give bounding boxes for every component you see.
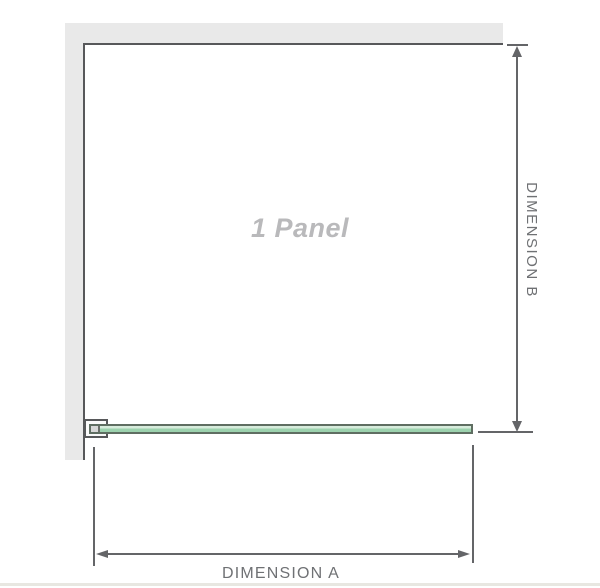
dimension-a-label: DIMENSION A <box>181 565 381 583</box>
panel-dimension-diagram: DIMENSION B DIMENSION A 1 Panel <box>0 0 600 588</box>
glass-panel-end-cap <box>91 426 100 432</box>
panel-count-label: 1 Panel <box>240 213 360 245</box>
bottom-divider <box>0 583 600 586</box>
glass-panel <box>89 424 473 434</box>
wall-left <box>65 23 83 460</box>
dimension-a-extension-right <box>472 445 474 563</box>
dimension-b-bottom-tick <box>478 431 533 433</box>
wall-left-inner-edge <box>83 43 85 460</box>
dimension-b-label: DIMENSION B <box>522 170 540 310</box>
wall-top <box>65 23 503 43</box>
arrow-right-icon <box>458 550 470 558</box>
dimension-a-line <box>106 553 460 555</box>
wall-top-inner-edge <box>83 43 503 45</box>
dimension-a-extension-left <box>93 447 95 566</box>
dimension-b-line <box>516 56 518 422</box>
